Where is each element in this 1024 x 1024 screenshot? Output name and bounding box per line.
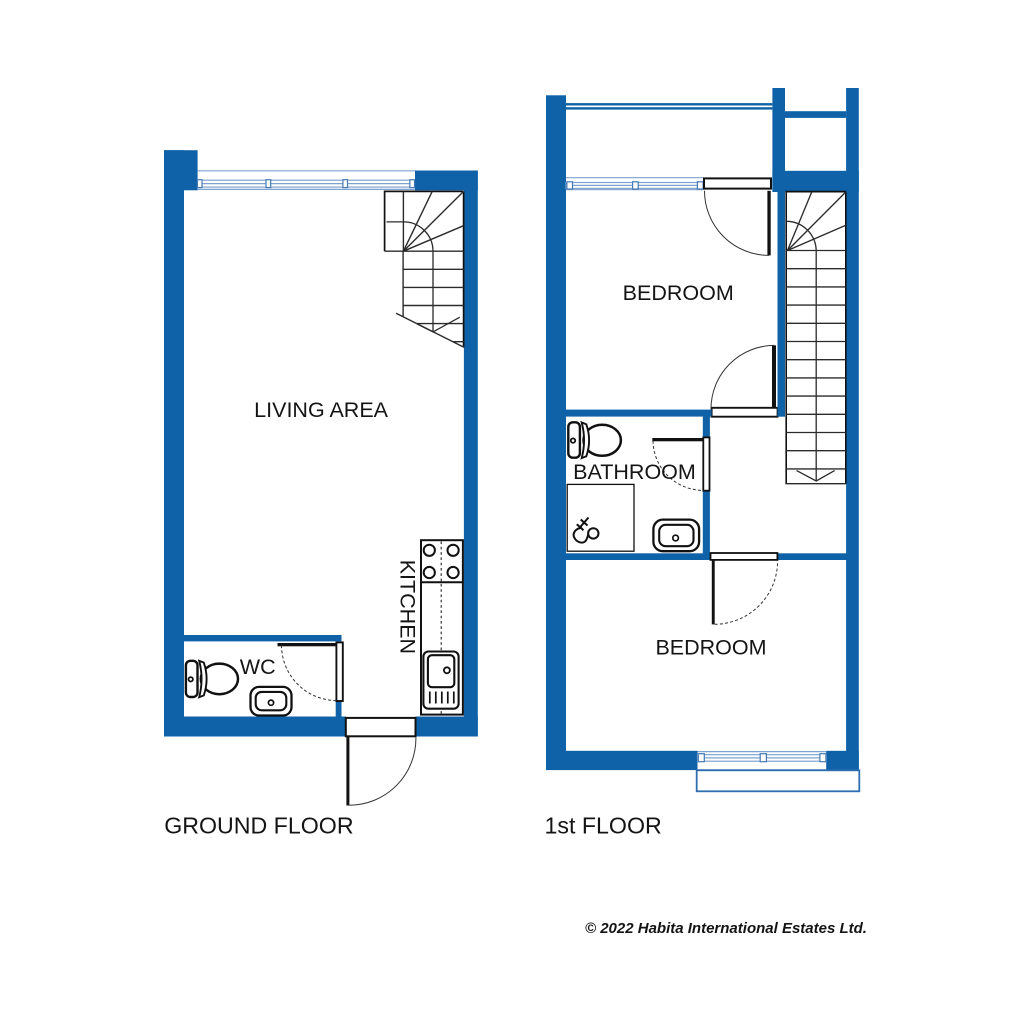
svg-text:GROUND FLOOR: GROUND FLOOR xyxy=(164,813,353,839)
svg-text:1st FLOOR: 1st FLOOR xyxy=(545,813,662,839)
svg-text:WC: WC xyxy=(240,655,276,679)
svg-text:BEDROOM: BEDROOM xyxy=(655,636,766,660)
svg-text:© 2022 Habita International Es: © 2022 Habita International Estates Ltd. xyxy=(585,920,867,937)
svg-text:BATHROOM: BATHROOM xyxy=(573,460,696,484)
svg-text:BEDROOM: BEDROOM xyxy=(623,281,734,305)
svg-text:LIVING AREA: LIVING AREA xyxy=(254,398,388,422)
svg-text:KITCHEN: KITCHEN xyxy=(395,560,419,654)
